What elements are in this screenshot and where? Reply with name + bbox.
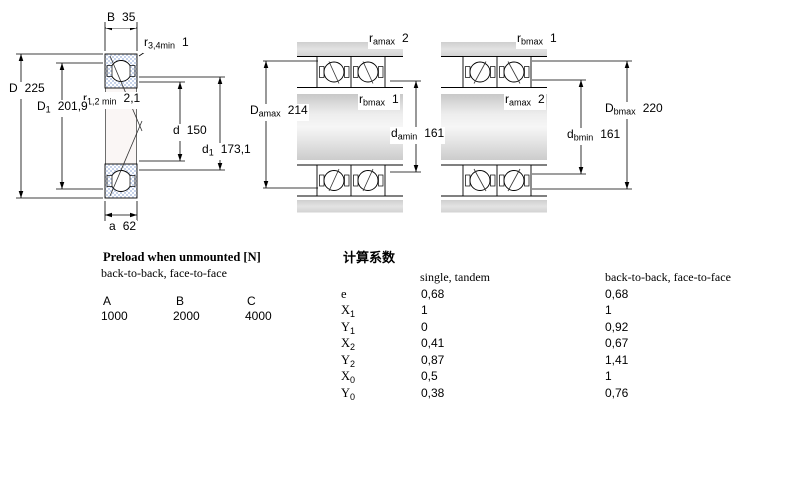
left-bearing-top-section: [105, 54, 137, 88]
preload-value: 2000: [173, 309, 200, 323]
preload-column-header: A: [103, 294, 111, 308]
preload-column-header: B: [176, 294, 184, 308]
preload-title: Preload when unmounted [N]: [103, 250, 261, 265]
dim-label-Damax: Damax214: [249, 104, 309, 121]
bearing-datasheet-page: B35 r3,4min1 D225 r1,2 min2,1 D1201,9 d1…: [0, 0, 800, 500]
right-dimension-arrows: [579, 61, 630, 189]
dim-label-D1: D1201,9: [36, 100, 89, 117]
preload-subtitle: back-to-back, face-to-face: [101, 266, 227, 281]
factors-column-header-single: single, tandem: [420, 270, 490, 285]
left-bearing-bottom-section: [105, 164, 137, 198]
dim-label-Dbmax: Dbmax220: [604, 102, 664, 119]
dim-label-ramax-right: ramax2: [504, 93, 546, 110]
factors-title: 计算系数: [343, 247, 395, 266]
dim-label-D: D225: [8, 82, 46, 99]
left-bearing-cross-section: [16, 22, 225, 221]
dim-label-B: B35: [106, 11, 136, 28]
dim-label-damin: damin161: [390, 127, 445, 144]
dim-label-r12min: r1,2 min2,1: [82, 92, 141, 109]
middle-top-bearing-pair: [317, 57, 385, 88]
dim-label-rbmax-middle: rbmax1: [358, 93, 400, 110]
right-bottom-bearing-pair: [463, 165, 531, 196]
preload-value: 4000: [245, 309, 272, 323]
preload-value: 1000: [101, 309, 128, 323]
dim-label-d1: d1173,1: [201, 143, 252, 160]
middle-bottom-bearing-pair: [317, 165, 385, 196]
dim-label-dbmin: dbmin161: [566, 128, 621, 145]
factors-column-header-btb: back-to-back, face-to-face: [605, 270, 731, 285]
dim-label-r34min: r3,4min1: [143, 36, 190, 53]
dim-label-rbmax-right: rbmax1: [516, 32, 558, 49]
preload-column-header: C: [247, 294, 256, 308]
dim-label-d: d150: [172, 124, 208, 141]
dim-label-a: a62: [108, 220, 137, 237]
dim-label-ramax-middle: ramax2: [368, 32, 410, 49]
right-top-bearing-pair: [463, 57, 531, 88]
